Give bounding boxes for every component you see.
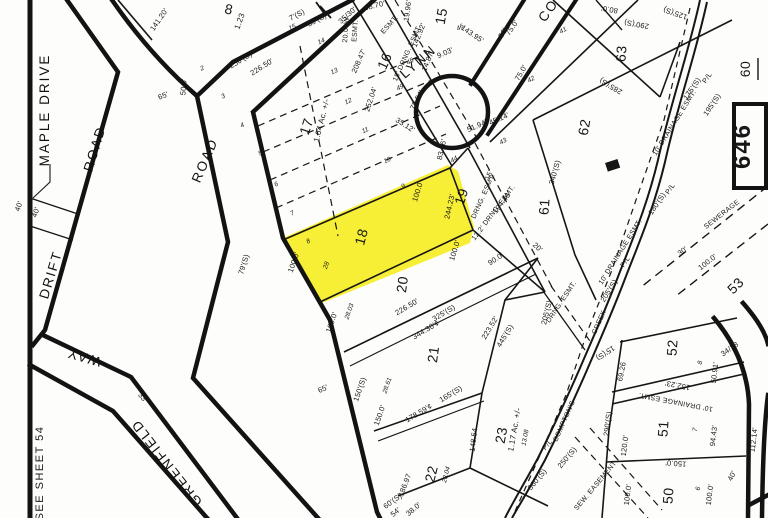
lots-label: 61 (535, 198, 552, 216)
point_numbers-label: 49 (395, 83, 405, 93)
point_numbers-label: 44 (449, 155, 459, 165)
easements-label: SEW. EASEMENT (573, 460, 618, 512)
lots-label: 60 (737, 61, 753, 78)
roads-label: WAY (65, 345, 103, 369)
dimensions-label: 90.0' (486, 250, 505, 267)
dimensions-label: 250'(S) (228, 49, 254, 70)
lots-label: 52 (663, 339, 680, 357)
dimensions-label: 40' (725, 469, 738, 483)
dimensions-label: 100.0' (622, 483, 634, 505)
easements-label: ESMT. (380, 14, 400, 35)
dimensions-label: 250'(S) (556, 445, 579, 470)
dimensions-label: 51.94' (466, 117, 489, 134)
dimensions-label: 226.50' (393, 296, 420, 317)
point_numbers-label: 3 (220, 93, 227, 101)
point_numbers-label: 10 (383, 156, 393, 166)
dimensions-label: 40' (13, 199, 25, 212)
dimensions-label: 79'(S) (236, 253, 251, 276)
dimensions-label: 148.54 (468, 427, 480, 452)
dimensions-label: 65' (157, 90, 170, 102)
dimensions-label: 7'(S) (287, 7, 306, 23)
roads-label: ROAD (81, 124, 109, 173)
lots-label: 51 (654, 420, 671, 438)
lots-label: 15 (432, 7, 451, 26)
dimensions-label: 195'(S) (701, 91, 723, 117)
point_numbers-label: 28.03 (343, 302, 355, 321)
dimensions-label: 78.54' (408, 88, 426, 111)
right-road-b (743, 303, 768, 344)
point_numbers-label: 2 (198, 65, 205, 73)
easements-label: ESMT. (351, 20, 360, 43)
point_numbers-label: 43 (498, 137, 508, 147)
dimensions-label: 9.03' (435, 45, 454, 60)
plat-map-svg: MAPLE DRIVEDRIFTROADROADWAYGREENFIELDLYN… (0, 0, 768, 518)
lots-label: 53 (724, 274, 747, 297)
lots-label: 50 (659, 487, 676, 505)
sheet_number-label: 646 (729, 123, 756, 169)
dimensions-label: 290'(S) (602, 410, 614, 436)
roads-label: CO (535, 0, 561, 25)
dimensions-label: 38.0' (404, 500, 423, 518)
highlighted-parcel-18[interactable] (283, 165, 474, 303)
dimensions-label: 94.43' (708, 424, 720, 446)
dimensions-label: 223.52' (479, 314, 500, 341)
dimensions-label: 340'(S) (547, 159, 563, 186)
easements-label: CREEK (591, 309, 608, 335)
acreages-label: 1.23 (233, 11, 247, 30)
dimensions-label: 285'(S) (597, 76, 623, 97)
dimensions-label: 125'(S) (662, 5, 689, 22)
dimensions-label: 226.50' (249, 56, 276, 77)
dimensions-label: 208.47' (349, 47, 368, 74)
easements-label: 20.0' W. (342, 15, 351, 43)
point_numbers-label: 8 (697, 360, 705, 365)
right-road-corner (751, 495, 768, 504)
dimensions-label: 344.30'¢ (411, 318, 441, 341)
lots-label: 62 (575, 118, 594, 137)
point_numbers-label: 12 (344, 97, 354, 107)
lots-label: 8 (223, 0, 234, 17)
dimensions-label: 290'(S) (623, 18, 650, 31)
sheet_refs-label: SEE SHEET 54 (34, 426, 46, 518)
dimensions-label: 65' (316, 382, 329, 395)
point_numbers-label: 13 (330, 67, 340, 77)
easements-label: 10' DRAINAGE ESMT. (598, 218, 644, 286)
dimensions-label: 112.14' (748, 426, 760, 452)
dimensions-label: 178.59'¢ (404, 401, 434, 424)
point_numbers-label: 11 (361, 126, 370, 135)
point_numbers-label: 6 (273, 181, 280, 189)
easements-label: P/L (702, 71, 714, 84)
dimensions-label: 120.0' (619, 434, 631, 456)
easements-label: P/L (665, 182, 677, 195)
dimensions-label: 252.04' (362, 85, 379, 112)
point_numbers-label: 7 (692, 427, 700, 432)
dimensions-label: 150'(S) (351, 376, 368, 403)
dimensions-label: 35'(S) (306, 11, 329, 29)
dimensions-label: 100.0' (696, 252, 718, 272)
dimensions-label: 150.0' (665, 458, 687, 468)
building-footprint (605, 159, 620, 172)
dimensions-label: 19.96' (402, 0, 414, 22)
dimensions-label: 30' (676, 244, 690, 258)
dimensions-label: 80.0' (600, 4, 618, 16)
point_numbers-label: 7 (289, 210, 296, 218)
dimensions-label: 50.0' (178, 78, 188, 96)
dimensions-label: 68.70' (363, 0, 386, 12)
dimensions-label: 69.26 (615, 361, 628, 382)
point_numbers-label: 6 (695, 486, 703, 491)
lots-label: 20 (393, 275, 411, 294)
dimensions-label: 100.0' (704, 483, 716, 505)
point_numbers-label: 4 (239, 122, 246, 130)
easements-label: 10' DRAINAGE ESMT. (638, 391, 714, 412)
lots-label: 63 (612, 45, 629, 63)
lots-label: 21 (424, 345, 442, 364)
roads-label: MAPLE DRIVE (37, 54, 52, 167)
easements-label: 10' DRAINAGE ESMT. (652, 89, 698, 157)
point_numbers-label: 13.08 (521, 429, 531, 447)
plat-map-sheet: MAPLE DRIVEDRIFTROADROADWAYGREENFIELDLYN… (0, 0, 768, 518)
dimensions-label: 35.12' (394, 115, 417, 134)
dimensions-label: 141.20' (148, 6, 170, 32)
easements-label: SEWERAGE (703, 199, 741, 231)
dimensions-label: 152.23' (664, 379, 691, 393)
point_numbers-label: 28.61 (381, 376, 393, 395)
dimensions-label: 150.0' (372, 403, 388, 426)
